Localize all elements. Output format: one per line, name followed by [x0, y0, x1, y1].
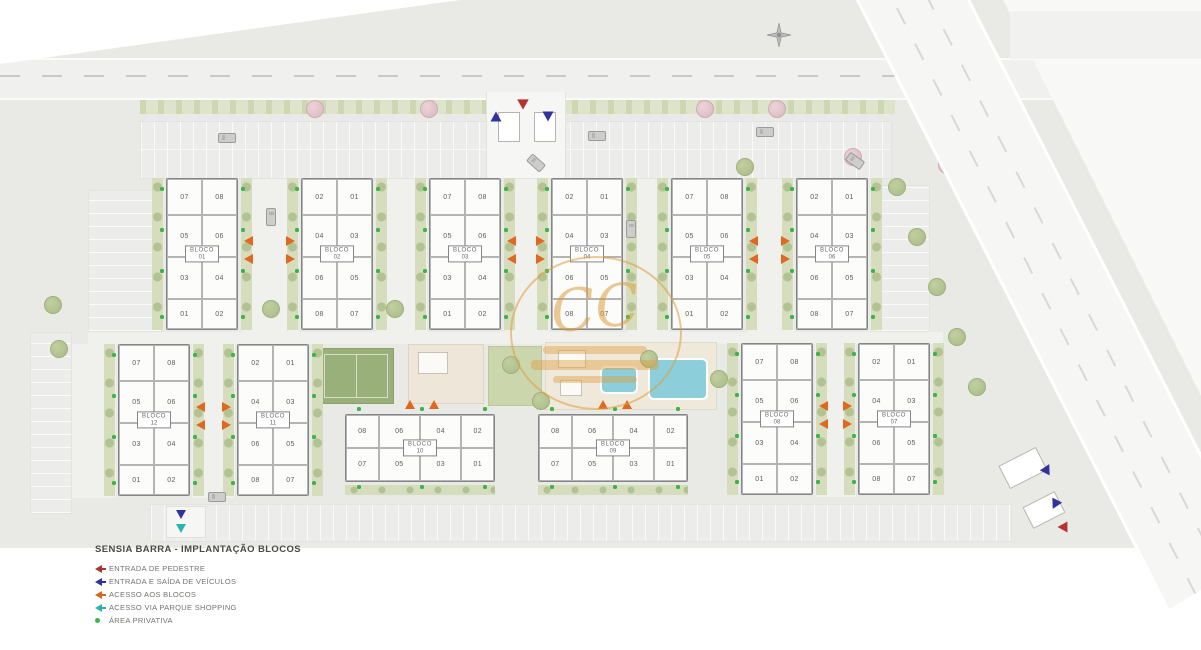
unit-number: 03 [742, 422, 777, 464]
unit-number: 08 [238, 465, 273, 495]
private-area-dot [550, 407, 554, 411]
private-area-dot [626, 269, 630, 273]
unit-number: 02 [302, 179, 337, 215]
unit-number: 01 [832, 179, 867, 215]
block-label-number: 05 [695, 254, 719, 261]
private-area-dot [933, 352, 937, 356]
unit-number: 01 [894, 344, 929, 380]
private-area-dot [933, 434, 937, 438]
tree-icon [888, 178, 906, 196]
private-area-dot [231, 394, 235, 398]
access-arrow-icon [517, 99, 529, 109]
private-area-dot [933, 393, 937, 397]
private-area-dot [504, 187, 508, 191]
private-area-dot [231, 353, 235, 357]
tree-icon [640, 350, 658, 368]
access-arrow-icon [781, 254, 790, 264]
unit-number: 07 [119, 345, 154, 381]
private-area-dot [676, 407, 680, 411]
legend-arrow-icon [95, 591, 109, 599]
building-block-10: 0806040207050301BLOCO10 [345, 414, 495, 482]
unit-number: 08 [465, 179, 500, 215]
private-area-dot [376, 315, 380, 319]
private-area-dot [665, 187, 669, 191]
green-strip [933, 343, 944, 495]
sports-court [318, 348, 394, 404]
block-label-number: 01 [190, 254, 214, 261]
amenity-building [560, 380, 582, 396]
access-arrow-icon [286, 254, 295, 264]
private-area-dot [112, 435, 116, 439]
flowering-tree-icon [768, 100, 786, 118]
private-area-dot [735, 480, 739, 484]
unit-number: 07 [167, 179, 202, 215]
unit-number: 05 [832, 257, 867, 299]
lane-markings [0, 75, 935, 77]
private-area-dot [626, 315, 630, 319]
building-block-03: 0708050603040102BLOCO03 [429, 178, 501, 330]
private-area-dot [790, 228, 794, 232]
tree-icon [50, 340, 68, 358]
private-area-dot [423, 315, 427, 319]
amenity-building [558, 350, 586, 368]
building-block-01: 0708050603040102BLOCO01 [166, 178, 238, 330]
access-arrow-icon [781, 236, 790, 246]
building-block-07: 0201040306050807BLOCO07 [858, 343, 930, 495]
building-block-06: 0201040306050807BLOCO06 [796, 178, 868, 330]
building-block-05: 0708050603040102BLOCO05 [671, 178, 743, 330]
block-label-number: 02 [325, 254, 349, 261]
private-area-dot [420, 407, 424, 411]
unit-number: 01 [167, 299, 202, 329]
access-arrow-icon [405, 400, 415, 409]
unit-number: 06 [302, 257, 337, 299]
legend-item: ENTRADA E SAÍDA DE VEÍCULOS [95, 575, 301, 588]
unit-number: 06 [552, 257, 587, 299]
parked-car [218, 133, 236, 143]
private-area-dot [295, 228, 299, 232]
block-label: BLOCO05 [690, 245, 724, 262]
private-area-dot [665, 269, 669, 273]
unit-number: 07 [346, 448, 379, 481]
tree-icon [386, 300, 404, 318]
block-label: BLOCO08 [760, 410, 794, 427]
private-area-dot [420, 485, 424, 489]
amenity-building [418, 352, 448, 374]
private-area-dot [871, 187, 875, 191]
unit-number: 05 [337, 257, 372, 299]
private-area-dot [933, 480, 937, 484]
building-block-09: 0806040207050301BLOCO09 [538, 414, 688, 482]
access-arrow-icon [819, 401, 828, 411]
unit-number: 07 [273, 465, 308, 495]
unit-number: 02 [552, 179, 587, 215]
building-block-02: 0201040306050807BLOCO02 [301, 178, 373, 330]
unit-number: 01 [119, 465, 154, 495]
kids-pool [600, 366, 638, 394]
unit-number: 04 [707, 257, 742, 299]
private-area-dot [626, 187, 630, 191]
unit-number: 08 [346, 415, 379, 448]
private-area-dot [852, 393, 856, 397]
private-area-dot [241, 228, 245, 232]
private-area-dot [504, 315, 508, 319]
private-area-dot [665, 315, 669, 319]
block-label: BLOCO11 [256, 411, 290, 428]
private-area-dot [871, 228, 875, 232]
tree-icon [710, 370, 728, 388]
green-strip [727, 343, 738, 495]
access-arrow-icon [749, 236, 758, 246]
private-area-dot [871, 315, 875, 319]
private-area-dot [231, 481, 235, 485]
private-area-dot [193, 481, 197, 485]
block-label-word: BLOCO [882, 412, 906, 419]
private-area-dot [312, 435, 316, 439]
access-arrow-icon [843, 419, 852, 429]
unit-number: 07 [742, 344, 777, 380]
private-area-dot [483, 407, 487, 411]
tree-icon [532, 392, 550, 410]
access-arrow-icon [536, 254, 545, 264]
block-label-word: BLOCO [820, 247, 844, 254]
unit-number: 07 [337, 299, 372, 329]
parking-strip [30, 332, 72, 514]
private-area-dot [790, 269, 794, 273]
private-area-dot [550, 485, 554, 489]
block-label: BLOCO02 [320, 245, 354, 262]
access-arrow-icon [196, 402, 205, 412]
private-area-dot [295, 187, 299, 191]
block-label-word: BLOCO [601, 441, 625, 448]
private-area-dot [735, 393, 739, 397]
private-area-dot [746, 228, 750, 232]
private-area-dot [545, 315, 549, 319]
private-area-dot [312, 481, 316, 485]
unit-number: 02 [777, 464, 812, 494]
access-arrow-icon [507, 236, 516, 246]
unit-number: 02 [654, 415, 687, 448]
access-arrow-icon [196, 420, 205, 430]
access-arrow-icon [244, 254, 253, 264]
private-area-dot [376, 187, 380, 191]
private-area-dot [735, 434, 739, 438]
private-area-dot [357, 407, 361, 411]
unit-number: 05 [587, 257, 622, 299]
block-label-word: BLOCO [261, 413, 285, 420]
unit-number: 08 [154, 345, 189, 381]
parked-car [626, 220, 636, 238]
legend-item: ÁREA PRIVATIVA [95, 614, 301, 627]
parked-car [266, 208, 276, 226]
block-label: BLOCO04 [570, 245, 604, 262]
building-block-12: 0708050603040102BLOCO12 [118, 344, 190, 496]
unit-number: 06 [238, 423, 273, 465]
access-arrow-icon [244, 236, 253, 246]
legend-item-label: ÁREA PRIVATIVA [109, 616, 173, 625]
unit-number: 01 [672, 299, 707, 329]
private-area-dot [816, 480, 820, 484]
private-area-dot [545, 269, 549, 273]
unit-number: 07 [587, 299, 622, 329]
private-area-dot [816, 352, 820, 356]
private-area-dot [545, 228, 549, 232]
unit-number: 01 [654, 448, 687, 481]
private-area-dot [790, 315, 794, 319]
parked-car [208, 492, 226, 502]
access-arrow-icon [843, 401, 852, 411]
block-label: BLOCO10 [403, 439, 437, 456]
private-area-dot [504, 269, 508, 273]
legend-item: ACESSO VIA PARQUE SHOPPING [95, 601, 301, 614]
main-road [0, 58, 1201, 100]
private-area-dot [790, 187, 794, 191]
unit-number: 03 [167, 257, 202, 299]
legend-item: ACESSO AOS BLOCOS [95, 588, 301, 601]
legend-item-label: ACESSO AOS BLOCOS [109, 590, 196, 599]
block-label-word: BLOCO [325, 247, 349, 254]
private-area-dot [376, 228, 380, 232]
unit-number: 07 [832, 299, 867, 329]
pedestrian-entry [166, 506, 206, 538]
main-road [1010, 10, 1201, 60]
access-arrow-icon [536, 236, 545, 246]
unit-number: 08 [777, 344, 812, 380]
unit-number: 07 [672, 179, 707, 215]
private-area-dot [613, 485, 617, 489]
private-area-dot [160, 315, 164, 319]
block-label-number: 10 [408, 448, 432, 455]
block-label-word: BLOCO [695, 247, 719, 254]
access-arrow-icon [176, 510, 186, 519]
legend-arrow-icon [95, 578, 109, 586]
private-area-dot [665, 228, 669, 232]
unit-number: 04 [154, 423, 189, 465]
legend: SENSIA BARRA - IMPLANTAÇÃO BLOCOS ENTRAD… [95, 544, 301, 627]
unit-number: 07 [539, 448, 572, 481]
legend-arrow-icon [95, 565, 109, 573]
block-label-number: 04 [575, 254, 599, 261]
block-label: BLOCO03 [448, 245, 482, 262]
unit-number: 07 [894, 464, 929, 494]
private-area-dot [160, 187, 164, 191]
access-arrow-icon [622, 400, 632, 409]
parked-car [756, 127, 774, 137]
green-strip [871, 178, 882, 330]
access-arrow-icon [176, 524, 186, 533]
block-label-number: 11 [261, 420, 285, 427]
unit-number: 04 [465, 257, 500, 299]
tree-icon [502, 356, 520, 374]
access-arrow-icon [543, 112, 554, 122]
private-area-dot [241, 315, 245, 319]
block-label-number: 03 [453, 254, 477, 261]
block-label-number: 08 [765, 419, 789, 426]
private-area-dot [746, 187, 750, 191]
block-label-word: BLOCO [408, 441, 432, 448]
legend-items: ENTRADA DE PEDESTREENTRADA E SAÍDA DE VE… [95, 562, 301, 627]
building-block-04: 0201040306050807BLOCO04 [551, 178, 623, 330]
private-area-dot [676, 485, 680, 489]
unit-number: 02 [465, 299, 500, 329]
private-area-dot [193, 435, 197, 439]
unit-number: 02 [154, 465, 189, 495]
private-area-dot [112, 481, 116, 485]
block-label-word: BLOCO [765, 412, 789, 419]
green-strip [626, 178, 637, 330]
unit-number: 02 [238, 345, 273, 381]
unit-number: 08 [539, 415, 572, 448]
unit-number: 01 [742, 464, 777, 494]
private-area-dot [852, 480, 856, 484]
unit-number: 07 [430, 179, 465, 215]
unit-number: 02 [202, 299, 237, 329]
tree-icon [908, 228, 926, 246]
private-area-dot [545, 187, 549, 191]
unit-number: 02 [707, 299, 742, 329]
private-area-dot [423, 269, 427, 273]
block-label: BLOCO01 [185, 245, 219, 262]
parked-car [588, 131, 606, 141]
private-area-dot [295, 269, 299, 273]
block-label-word: BLOCO [575, 247, 599, 254]
green-strip [657, 178, 668, 330]
private-area-dot [735, 352, 739, 356]
parking-strip [88, 190, 162, 332]
legend-item-label: ACESSO VIA PARQUE SHOPPING [109, 603, 237, 612]
block-label-number: 12 [142, 420, 166, 427]
private-area-dot [160, 269, 164, 273]
unit-number: 08 [859, 464, 894, 494]
private-area-dot [816, 393, 820, 397]
access-arrow-icon [819, 419, 828, 429]
private-area-dot [231, 435, 235, 439]
access-arrow-icon [429, 400, 439, 409]
legend-item-label: ENTRADA DE PEDESTRE [109, 564, 205, 573]
block-label: BLOCO12 [137, 411, 171, 428]
swimming-pool [648, 358, 708, 400]
unit-number: 08 [552, 299, 587, 329]
unit-number: 08 [707, 179, 742, 215]
flowering-tree-icon [696, 100, 714, 118]
private-area-dot [295, 315, 299, 319]
unit-number: 01 [337, 179, 372, 215]
private-area-dot [241, 187, 245, 191]
compass-icon [766, 22, 792, 48]
unit-number: 01 [461, 448, 494, 481]
private-area-dot [312, 394, 316, 398]
block-label: BLOCO07 [877, 410, 911, 427]
tree-icon [736, 158, 754, 176]
block-label-word: BLOCO [190, 247, 214, 254]
legend-item-label: ENTRADA E SAÍDA DE VEÍCULOS [109, 577, 236, 586]
block-label-number: 09 [601, 448, 625, 455]
unit-number: 08 [302, 299, 337, 329]
access-arrow-icon [749, 254, 758, 264]
legend-title: SENSIA BARRA - IMPLANTAÇÃO BLOCOS [95, 544, 301, 555]
tree-icon [928, 278, 946, 296]
tree-icon [948, 328, 966, 346]
tree-icon [262, 300, 280, 318]
unit-number: 03 [430, 257, 465, 299]
unit-number: 02 [797, 179, 832, 215]
unit-number: 08 [797, 299, 832, 329]
private-area-dot [746, 269, 750, 273]
block-label: BLOCO06 [815, 245, 849, 262]
private-area-dot [112, 394, 116, 398]
private-area-dot [852, 352, 856, 356]
access-arrow-icon [491, 112, 502, 122]
unit-number: 03 [672, 257, 707, 299]
block-label-word: BLOCO [142, 413, 166, 420]
tree-icon [968, 378, 986, 396]
legend-arrow-icon [95, 604, 109, 612]
private-area-dot [241, 269, 245, 273]
access-arrow-icon [598, 400, 608, 409]
unit-number: 06 [797, 257, 832, 299]
green-strip [312, 344, 323, 496]
unit-number: 02 [859, 344, 894, 380]
private-area-dot [852, 434, 856, 438]
private-area-dot [193, 353, 197, 357]
private-area-dot [816, 434, 820, 438]
private-area-dot [746, 315, 750, 319]
private-area-dot [160, 228, 164, 232]
access-arrow-icon [286, 236, 295, 246]
private-area-dot-icon [95, 618, 109, 623]
private-area-dot [376, 269, 380, 273]
private-area-dot [312, 353, 316, 357]
green-strip [104, 344, 115, 496]
parking-strip [150, 504, 1012, 542]
building-block-08: 0708050603040102BLOCO08 [741, 343, 813, 495]
flowering-tree-icon [306, 100, 324, 118]
unit-number: 01 [587, 179, 622, 215]
block-label-number: 07 [882, 419, 906, 426]
unit-number: 01 [273, 345, 308, 381]
unit-number: 05 [273, 423, 308, 465]
block-label-word: BLOCO [453, 247, 477, 254]
building-block-11: 0201040306050807BLOCO11 [237, 344, 309, 496]
unit-number: 02 [461, 415, 494, 448]
private-area-dot [193, 394, 197, 398]
flowering-tree-icon [420, 100, 438, 118]
legend-item: ENTRADA DE PEDESTRE [95, 562, 301, 575]
access-arrow-icon [1058, 522, 1068, 533]
green-strip [152, 178, 163, 330]
unit-number: 06 [859, 422, 894, 464]
private-area-dot [483, 485, 487, 489]
block-label: BLOCO09 [596, 439, 630, 456]
private-area-dot [613, 407, 617, 411]
unit-number: 04 [202, 257, 237, 299]
unit-number: 01 [430, 299, 465, 329]
tree-icon [44, 296, 62, 314]
access-arrow-icon [222, 402, 231, 412]
private-area-dot [423, 187, 427, 191]
block-label-number: 06 [820, 254, 844, 261]
site-plan: CC SENSIA BARRA - IMPLANTAÇÃO BLOCOS ENT… [0, 0, 1201, 650]
private-area-dot [871, 269, 875, 273]
green-strip [415, 178, 426, 330]
access-arrow-icon [222, 420, 231, 430]
unit-number: 08 [202, 179, 237, 215]
parking-strip [874, 185, 930, 332]
unit-number: 03 [119, 423, 154, 465]
unit-number: 05 [894, 422, 929, 464]
unit-number: 04 [777, 422, 812, 464]
private-area-dot [423, 228, 427, 232]
